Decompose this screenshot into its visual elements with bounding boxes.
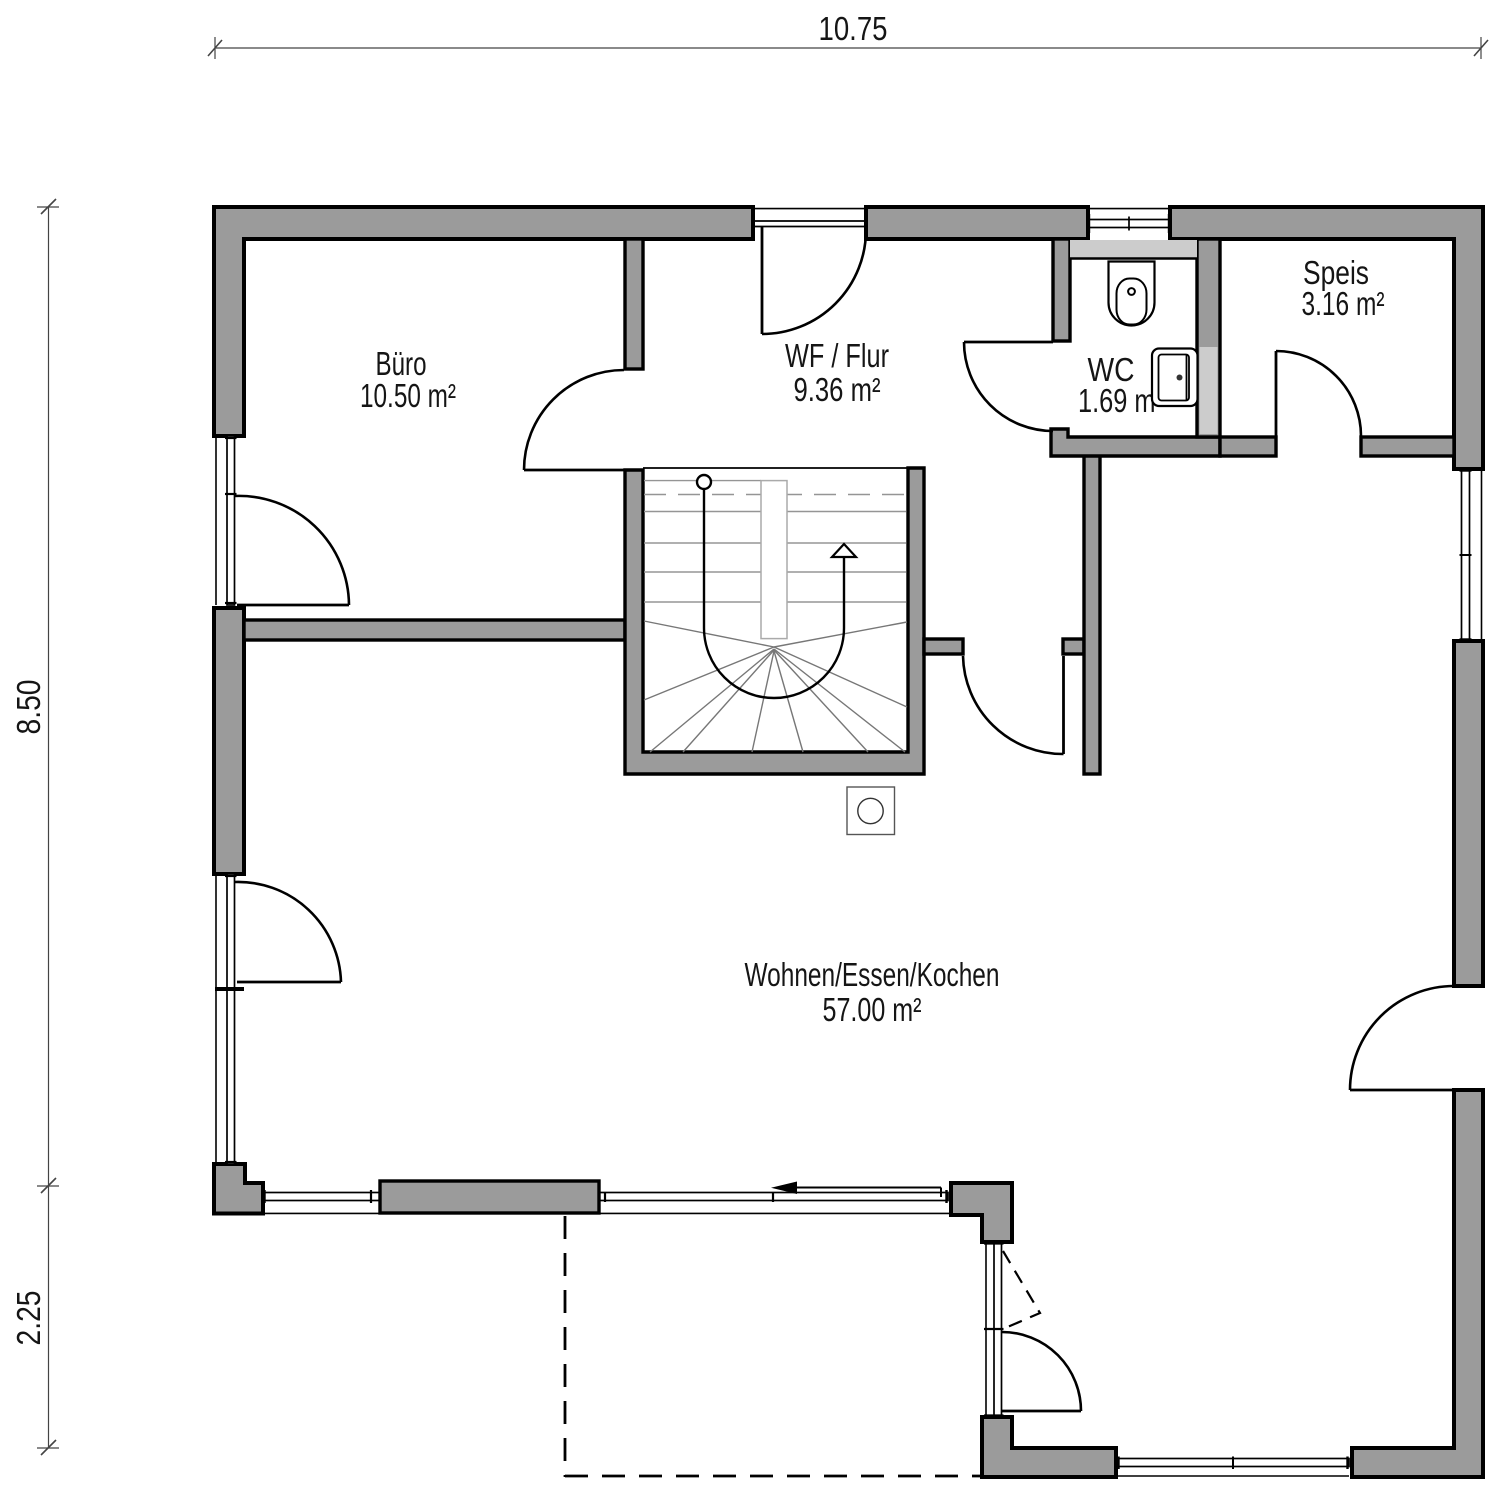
svg-text:10.75: 10.75	[819, 10, 888, 47]
svg-text:WF / Flur: WF / Flur	[785, 337, 889, 374]
svg-text:57.00 m²: 57.00 m²	[823, 991, 922, 1028]
svg-text:8.50: 8.50	[10, 680, 47, 735]
svg-text:2.25: 2.25	[10, 1291, 47, 1346]
svg-text:Wohnen/Essen/Kochen: Wohnen/Essen/Kochen	[745, 956, 1000, 993]
svg-text:10.50 m²: 10.50 m²	[360, 377, 456, 414]
svg-text:9.36 m²: 9.36 m²	[794, 371, 881, 408]
svg-text:3.16 m²: 3.16 m²	[1302, 285, 1385, 322]
